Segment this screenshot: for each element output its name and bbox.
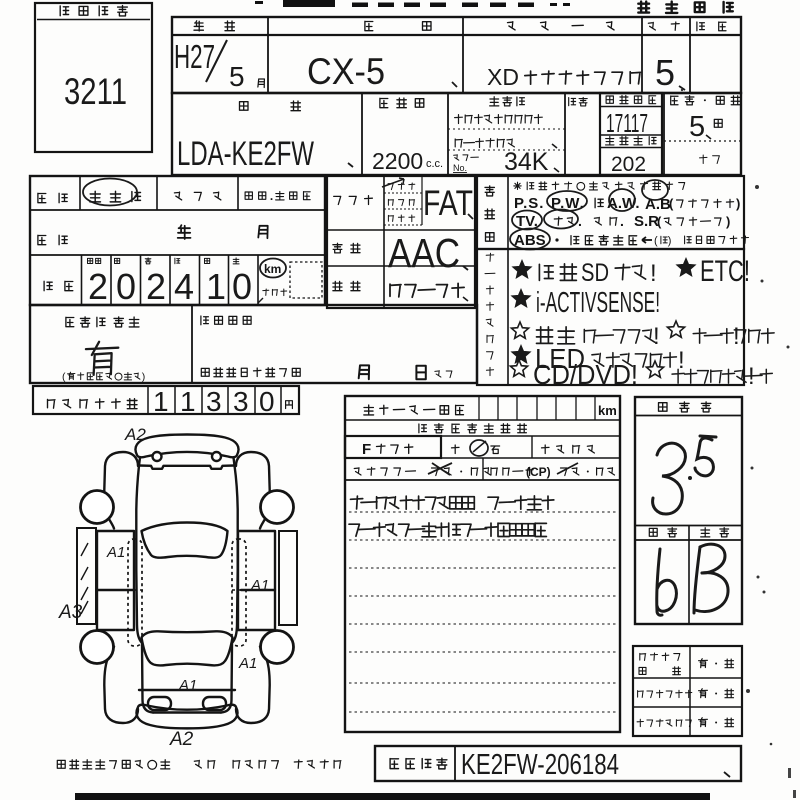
svg-text:202: 202 (611, 153, 646, 176)
svg-text:XD: XD (487, 64, 519, 90)
svg-text:A3: A3 (58, 602, 83, 623)
svg-text:34K: 34K (504, 148, 549, 176)
svg-text:): ) (736, 196, 740, 211)
svg-text:5: 5 (229, 61, 245, 92)
svg-text:AAC: AAC (388, 230, 460, 276)
svg-text:KE2FW-206184: KE2FW-206184 (461, 749, 619, 781)
svg-text:3211: 3211 (64, 71, 127, 112)
svg-text:(: ( (62, 371, 66, 383)
svg-text:!: ! (748, 363, 755, 390)
svg-text:A1: A1 (250, 577, 269, 594)
svg-text:A1: A1 (106, 544, 125, 561)
svg-text:(: ( (657, 214, 662, 229)
svg-text:3: 3 (206, 386, 222, 417)
svg-text:2200: 2200 (372, 148, 423, 174)
svg-text:A1: A1 (238, 655, 257, 672)
svg-text:1: 1 (153, 386, 169, 417)
svg-text:5: 5 (655, 52, 675, 93)
svg-text:H27: H27 (174, 38, 215, 75)
svg-text:CX-5: CX-5 (307, 51, 385, 92)
svg-text:km: km (264, 262, 281, 276)
svg-text:(: ( (669, 196, 674, 211)
svg-text:c.c.: c.c. (426, 158, 443, 170)
svg-text:ETC!: ETC! (700, 255, 750, 288)
svg-text:SD: SD (581, 259, 609, 287)
svg-text:): ) (668, 235, 672, 247)
svg-text:): ) (726, 214, 730, 229)
svg-text:1: 1 (180, 386, 196, 417)
svg-text:.: . (270, 189, 273, 203)
svg-text:CD/DVD!: CD/DVD! (533, 359, 638, 390)
svg-text:A2: A2 (169, 729, 194, 750)
svg-text:(CP): (CP) (526, 465, 551, 479)
svg-text:P.S.: P.S. (514, 195, 544, 212)
svg-text:2: 2 (88, 266, 108, 307)
svg-text:S.R: S.R (634, 213, 659, 230)
svg-text:LDA-KE2FW: LDA-KE2FW (177, 135, 314, 173)
svg-text:2: 2 (146, 266, 166, 307)
svg-text:FAT: FAT (423, 184, 473, 223)
svg-text:0: 0 (232, 266, 252, 307)
svg-text:!: ! (650, 260, 657, 287)
svg-text:!: ! (733, 323, 740, 350)
svg-text:i-ACTIVSENSE!: i-ACTIVSENSE! (536, 287, 660, 319)
svg-text:A.B: A.B (645, 196, 671, 213)
svg-text:F: F (362, 441, 371, 458)
svg-text:0: 0 (116, 266, 136, 307)
svg-text:.: . (472, 497, 476, 514)
svg-text:ABS: ABS (514, 232, 546, 249)
svg-text:4: 4 (174, 266, 194, 307)
svg-text:): ) (142, 371, 146, 383)
svg-text:3: 3 (233, 386, 249, 417)
svg-text:No.: No. (453, 163, 467, 173)
svg-text:1: 1 (206, 266, 226, 307)
svg-text:17117: 17117 (606, 108, 648, 138)
svg-text:A1: A1 (178, 677, 197, 694)
svg-text:(: ( (654, 235, 658, 247)
svg-text:0: 0 (259, 386, 275, 417)
svg-text:A2: A2 (124, 425, 146, 444)
svg-text:!: ! (653, 323, 660, 350)
svg-text:km: km (598, 403, 617, 418)
svg-text:5: 5 (689, 111, 705, 143)
svg-text:.: . (620, 213, 624, 229)
svg-text:!: ! (678, 347, 685, 374)
